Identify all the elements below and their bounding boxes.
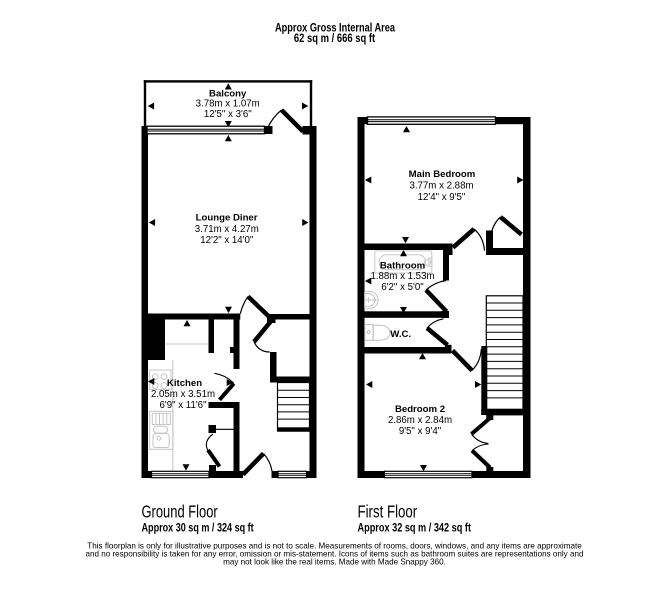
svg-text:Kitchen: Kitchen xyxy=(167,378,202,389)
svg-text:Bedroom 2: Bedroom 2 xyxy=(395,404,445,415)
svg-text:6'2" x 5'0": 6'2" x 5'0" xyxy=(381,282,424,293)
svg-text:12'2" x 14'0": 12'2" x 14'0" xyxy=(200,235,254,246)
svg-text:2.05m x 3.51m: 2.05m x 3.51m xyxy=(151,389,215,400)
svg-text:1.88m x 1.53m: 1.88m x 1.53m xyxy=(370,271,434,282)
svg-text:3.71m x 4.27m: 3.71m x 4.27m xyxy=(195,224,259,235)
svg-text:First Floor: First Floor xyxy=(358,501,418,521)
svg-text:3.78m x 1.07m: 3.78m x 1.07m xyxy=(196,99,260,110)
svg-text:62 sq m / 666 sq ft: 62 sq m / 666 sq ft xyxy=(294,31,375,45)
svg-text:2.86m x 2.84m: 2.86m x 2.84m xyxy=(388,415,452,426)
svg-text:may not look like the real ite: may not look like the real items. Made w… xyxy=(223,557,446,566)
svg-text:12'4" x 9'5": 12'4" x 9'5" xyxy=(418,192,466,203)
svg-text:Main Bedroom: Main Bedroom xyxy=(409,169,476,180)
svg-text:Ground Floor: Ground Floor xyxy=(142,502,218,522)
svg-text:Bathroom: Bathroom xyxy=(380,260,425,271)
svg-text:Approx 30 sq m / 324 sq ft: Approx 30 sq m / 324 sq ft xyxy=(142,520,254,534)
svg-text:Lounge Diner: Lounge Diner xyxy=(196,213,258,224)
svg-text:6'9" x 11'6": 6'9" x 11'6" xyxy=(159,400,207,411)
svg-text:12'5" x 3'6": 12'5" x 3'6" xyxy=(204,109,252,120)
svg-text:9'5" x 9'4": 9'5" x 9'4" xyxy=(399,426,442,437)
svg-text:Approx 32 sq m / 342 sq ft: Approx 32 sq m / 342 sq ft xyxy=(358,521,472,535)
svg-text:W.C.: W.C. xyxy=(390,329,411,340)
svg-text:3.77m x 2.88m: 3.77m x 2.88m xyxy=(409,180,473,191)
